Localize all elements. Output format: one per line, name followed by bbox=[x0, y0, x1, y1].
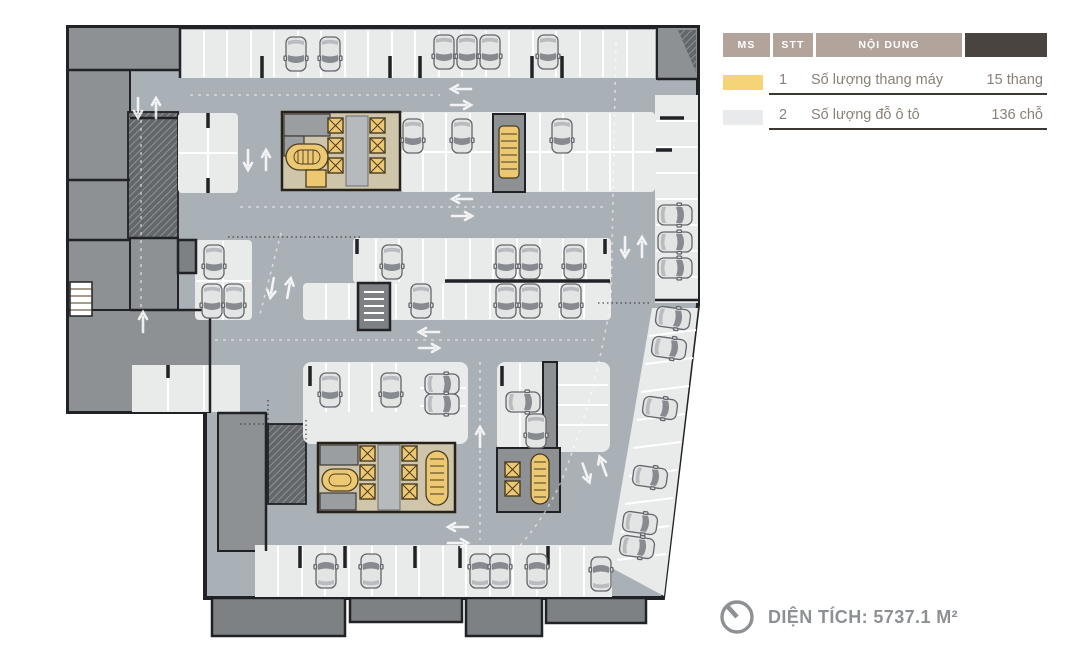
car-icon bbox=[559, 284, 583, 318]
area-label: DIỆN TÍCH: 5737.1 M² bbox=[768, 607, 958, 628]
legend-row-number: 1 bbox=[769, 72, 797, 88]
car-icon bbox=[359, 554, 383, 588]
elevator-icon bbox=[360, 484, 375, 499]
car-icon bbox=[200, 284, 224, 318]
car-icon bbox=[562, 245, 586, 279]
elevator-icon bbox=[328, 118, 343, 133]
legend-header-ms: MS bbox=[723, 33, 770, 57]
car-icon bbox=[506, 390, 540, 414]
legend-row-elevators: 1 Số lượng thang máy 15 thang bbox=[723, 70, 1047, 95]
legend-header: MS STT NỘI DUNG bbox=[723, 33, 1047, 57]
elevator-icon bbox=[328, 158, 343, 173]
legend-row-value: 15 thang bbox=[967, 72, 1047, 88]
car-icon bbox=[379, 373, 403, 407]
elevator-icon bbox=[370, 118, 385, 133]
stair-icon bbox=[531, 454, 549, 504]
legend-swatch-parking bbox=[723, 110, 763, 125]
legend-row-value: 136 chỗ bbox=[967, 107, 1047, 123]
car-icon bbox=[401, 119, 425, 153]
legend-row-label: Số lượng thang máy bbox=[811, 72, 967, 88]
car-icon bbox=[314, 554, 338, 588]
elevator-icon bbox=[402, 446, 417, 461]
car-icon bbox=[455, 35, 479, 69]
elevator-icon bbox=[505, 462, 520, 477]
car-icon bbox=[468, 554, 492, 588]
ramp-icon bbox=[128, 112, 178, 238]
car-icon bbox=[202, 245, 226, 279]
car-icon bbox=[658, 203, 692, 227]
car-icon bbox=[658, 230, 692, 254]
car-icon bbox=[284, 37, 308, 71]
car-icon bbox=[589, 557, 613, 591]
ramp-icon bbox=[268, 424, 306, 504]
stairwell-top bbox=[493, 114, 525, 192]
car-icon bbox=[524, 414, 548, 448]
legend-header-content: NỘI DUNG bbox=[816, 33, 962, 57]
stair-icon bbox=[322, 469, 358, 491]
car-icon bbox=[222, 284, 246, 318]
car-icon bbox=[478, 35, 502, 69]
car-icon bbox=[518, 284, 542, 318]
legend-header-stt: STT bbox=[773, 33, 813, 57]
floor-plan-page: MS STT NỘI DUNG 1 Số lượng thang máy 15 … bbox=[0, 0, 1080, 655]
legend-row-label: Số lượng đỗ ô tô bbox=[811, 107, 967, 123]
car-icon bbox=[494, 284, 518, 318]
elevator-icon bbox=[360, 446, 375, 461]
car-icon bbox=[409, 284, 433, 318]
elevator-core-bottom bbox=[318, 443, 455, 512]
car-icon bbox=[450, 119, 474, 153]
elevator-core-small bbox=[497, 448, 560, 512]
car-icon bbox=[518, 245, 542, 279]
elevator-icon bbox=[360, 465, 375, 480]
car-icon bbox=[318, 37, 342, 71]
elevator-icon bbox=[505, 481, 520, 496]
car-icon bbox=[525, 554, 549, 588]
car-icon bbox=[494, 245, 518, 279]
car-icon bbox=[432, 35, 456, 69]
legend-row-number: 2 bbox=[769, 107, 797, 123]
elevator-core-top bbox=[282, 112, 400, 190]
car-icon bbox=[380, 245, 404, 279]
elevator-icon bbox=[402, 484, 417, 499]
clock-icon bbox=[718, 598, 756, 636]
legend-swatch-elevator bbox=[723, 75, 763, 90]
car-icon bbox=[318, 373, 342, 407]
car-icon bbox=[488, 554, 512, 588]
legend-row-parking: 2 Số lượng đỗ ô tô 136 chỗ bbox=[723, 105, 1047, 130]
car-icon bbox=[425, 372, 459, 396]
exit-stair-left bbox=[70, 282, 92, 316]
legend-header-spacer bbox=[965, 33, 1047, 57]
area-footer: DIỆN TÍCH: 5737.1 M² bbox=[718, 598, 958, 636]
elevator-icon bbox=[328, 138, 343, 153]
elevator-icon bbox=[370, 138, 385, 153]
car-icon bbox=[550, 119, 574, 153]
elevator-icon bbox=[402, 465, 417, 480]
stair-icon bbox=[286, 144, 328, 170]
exterior-blocks bbox=[212, 598, 646, 636]
legend-table: MS STT NỘI DUNG 1 Số lượng thang máy 15 … bbox=[723, 33, 1047, 130]
car-icon bbox=[536, 35, 560, 69]
car-icon bbox=[425, 392, 459, 416]
car-icon bbox=[658, 256, 692, 280]
elevator-icon bbox=[370, 158, 385, 173]
